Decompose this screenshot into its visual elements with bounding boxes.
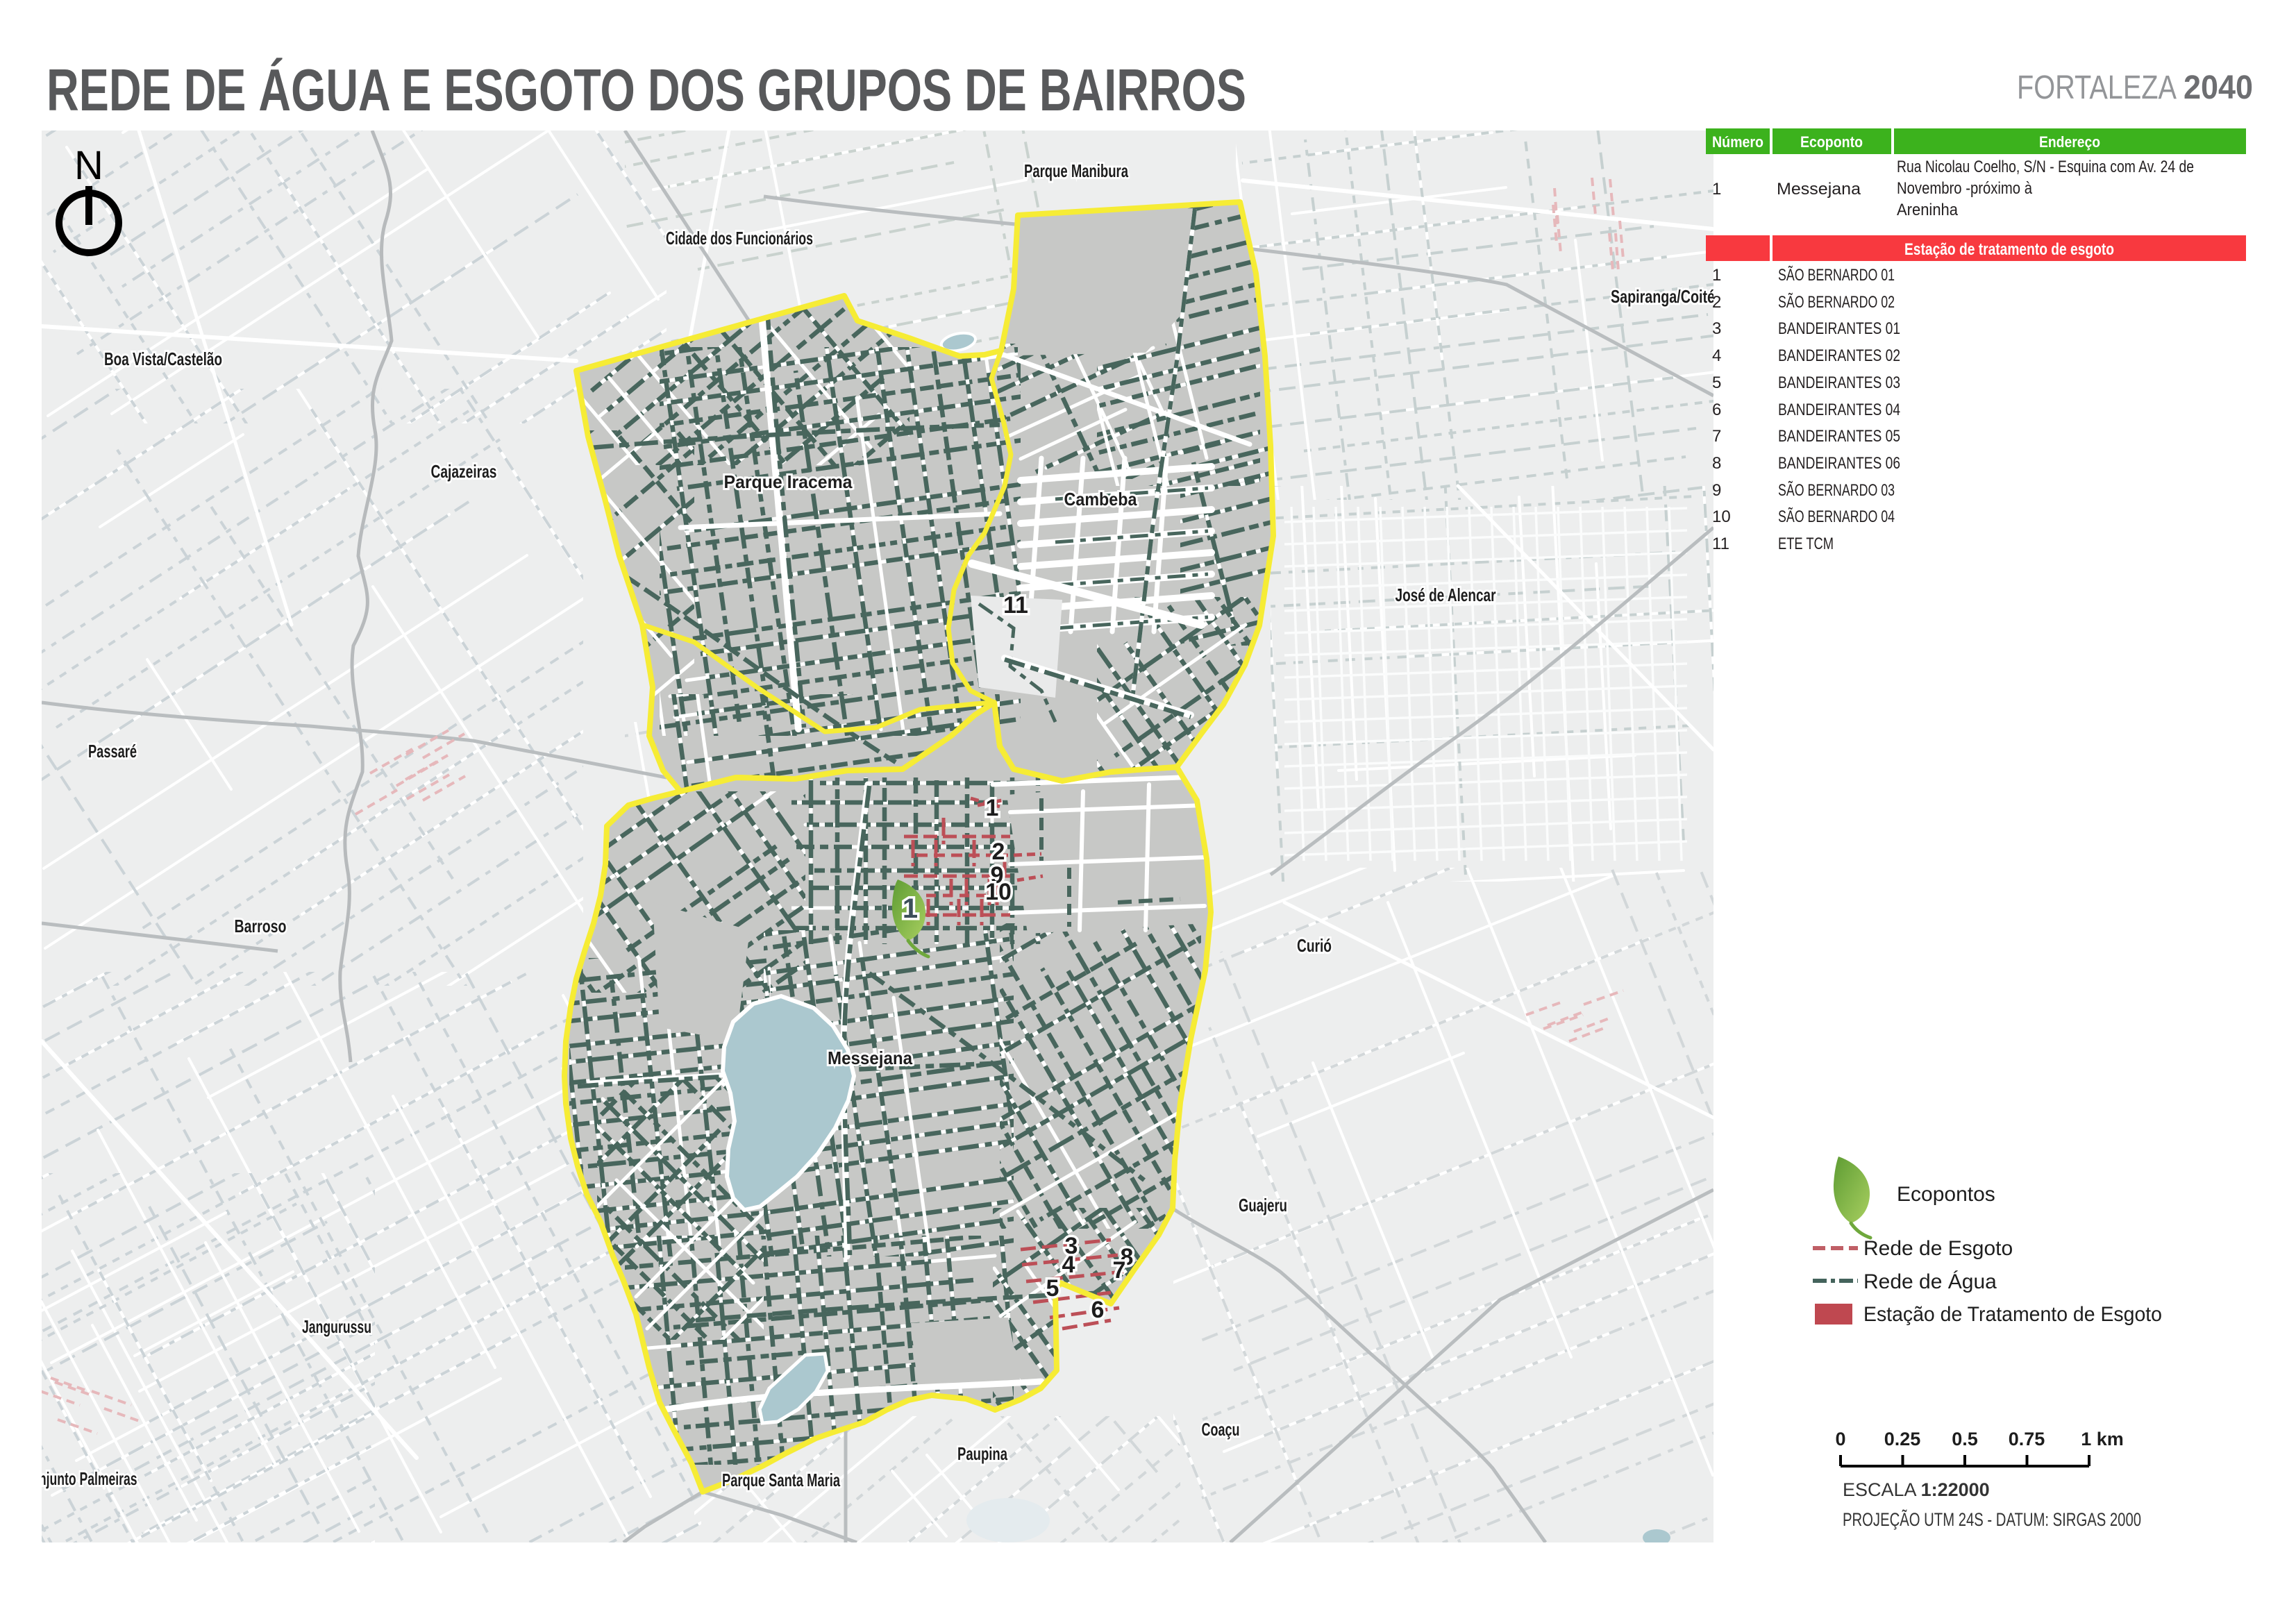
svg-text:Endereço: Endereço xyxy=(2039,133,2100,151)
svg-text:SÃO BERNARDO 02: SÃO BERNARDO 02 xyxy=(1778,293,1895,312)
svg-text:Barroso: Barroso xyxy=(235,916,287,936)
svg-text:10: 10 xyxy=(985,879,1012,905)
svg-text:Cajazeiras: Cajazeiras xyxy=(431,461,497,482)
svg-text:Estação de tratamento de esgot: Estação de tratamento de esgoto xyxy=(1904,240,2114,259)
svg-text:Parque Manibura: Parque Manibura xyxy=(1024,160,1128,181)
svg-text:Paupina: Paupina xyxy=(957,1443,1007,1464)
svg-text:SÃO BERNARDO 01: SÃO BERNARDO 01 xyxy=(1778,266,1895,285)
svg-text:1: 1 xyxy=(986,795,999,821)
svg-text:BANDEIRANTES 02: BANDEIRANTES 02 xyxy=(1778,346,1900,365)
svg-text:Curió: Curió xyxy=(1297,935,1332,956)
svg-text:BANDEIRANTES 06: BANDEIRANTES 06 xyxy=(1778,454,1900,473)
svg-text:SÃO BERNARDO 04: SÃO BERNARDO 04 xyxy=(1778,507,1895,526)
svg-text:7: 7 xyxy=(1113,1257,1126,1284)
svg-text:Rede de Água: Rede de Água xyxy=(1863,1270,1997,1293)
svg-text:3: 3 xyxy=(1712,319,1721,338)
svg-text:Ecoponto: Ecoponto xyxy=(1800,133,1863,151)
svg-text:Parque Santa Maria: Parque Santa Maria xyxy=(722,1470,840,1490)
svg-text:ESCALA 1:22000: ESCALA 1:22000 xyxy=(1843,1479,1990,1500)
svg-text:BANDEIRANTES 01: BANDEIRANTES 01 xyxy=(1778,319,1900,338)
svg-text:11: 11 xyxy=(1003,592,1028,619)
svg-text:Messejana: Messejana xyxy=(828,1048,912,1068)
svg-text:6: 6 xyxy=(1091,1297,1105,1323)
svg-text:PROJEÇÃO UTM 24S - DATUM: SIRG: PROJEÇÃO UTM 24S - DATUM: SIRGAS 2000 xyxy=(1843,1508,2141,1530)
svg-text:Areninha: Areninha xyxy=(1897,201,1959,219)
svg-text:Boa Vista/Castelão: Boa Vista/Castelão xyxy=(104,348,222,369)
svg-text:1: 1 xyxy=(1712,266,1721,285)
svg-text:Sapiranga/Coité: Sapiranga/Coité xyxy=(1611,286,1715,307)
svg-text:11: 11 xyxy=(1712,535,1729,553)
svg-text:SÃO BERNARDO 03: SÃO BERNARDO 03 xyxy=(1778,481,1895,500)
svg-text:5: 5 xyxy=(1046,1275,1059,1302)
svg-text:0.75: 0.75 xyxy=(2009,1429,2045,1449)
svg-text:Conjunto Palmeiras: Conjunto Palmeiras xyxy=(23,1468,137,1489)
svg-text:BANDEIRANTES 03: BANDEIRANTES 03 xyxy=(1778,373,1900,392)
svg-text:0: 0 xyxy=(1835,1429,1845,1449)
svg-text:Novembro -próximo à: Novembro -próximo à xyxy=(1897,179,2033,198)
svg-text:1 km: 1 km xyxy=(2081,1429,2124,1449)
svg-text:1: 1 xyxy=(903,893,918,924)
svg-text:4: 4 xyxy=(1062,1252,1075,1278)
svg-text:4: 4 xyxy=(1712,346,1721,365)
svg-text:9: 9 xyxy=(1712,481,1721,500)
svg-text:6: 6 xyxy=(1712,401,1721,419)
svg-text:0.5: 0.5 xyxy=(1952,1429,1978,1449)
svg-text:Rua Nicolau Coelho, S/N - Esqu: Rua Nicolau Coelho, S/N - Esquina com Av… xyxy=(1897,158,2194,176)
svg-text:Rede de Esgoto: Rede de Esgoto xyxy=(1863,1237,2013,1260)
svg-text:FORTALEZA: FORTALEZA xyxy=(2017,69,2177,106)
svg-text:BANDEIRANTES 05: BANDEIRANTES 05 xyxy=(1778,427,1900,446)
svg-text:10: 10 xyxy=(1712,507,1731,526)
svg-text:ETE TCM: ETE TCM xyxy=(1778,535,1834,553)
svg-text:2: 2 xyxy=(1712,293,1721,312)
svg-text:8: 8 xyxy=(1712,454,1721,473)
svg-text:Cidade dos Funcionários: Cidade dos Funcionários xyxy=(666,228,813,249)
svg-text:Guajeru: Guajeru xyxy=(1239,1195,1287,1216)
svg-text:N: N xyxy=(74,143,103,188)
svg-text:Passaré: Passaré xyxy=(88,741,137,762)
svg-text:Estação de Tratamento de Esgot: Estação de Tratamento de Esgoto xyxy=(1863,1303,2162,1326)
svg-text:Messejana: Messejana xyxy=(1777,180,1861,199)
svg-text:1: 1 xyxy=(1712,180,1721,199)
svg-text:Coaçu: Coaçu xyxy=(1202,1419,1240,1440)
svg-text:BANDEIRANTES 04: BANDEIRANTES 04 xyxy=(1778,401,1900,419)
svg-text:Número: Número xyxy=(1712,133,1763,151)
svg-text:Jangurussu: Jangurussu xyxy=(302,1316,371,1337)
svg-text:REDE DE ÁGUA E ESGOTO DOS GRUP: REDE DE ÁGUA E ESGOTO DOS GRUPOS DE BAIR… xyxy=(47,58,1246,124)
svg-text:Ecopontos: Ecopontos xyxy=(1897,1183,1995,1206)
svg-text:Parque Iracema: Parque Iracema xyxy=(724,471,853,492)
svg-text:2040: 2040 xyxy=(2184,69,2253,106)
svg-text:José de Alencar: José de Alencar xyxy=(1396,585,1496,605)
svg-text:2: 2 xyxy=(992,839,1005,865)
svg-text:5: 5 xyxy=(1712,373,1721,392)
svg-text:0.25: 0.25 xyxy=(1884,1429,1921,1449)
svg-text:7: 7 xyxy=(1712,427,1721,446)
svg-text:Cambeba: Cambeba xyxy=(1064,489,1137,510)
